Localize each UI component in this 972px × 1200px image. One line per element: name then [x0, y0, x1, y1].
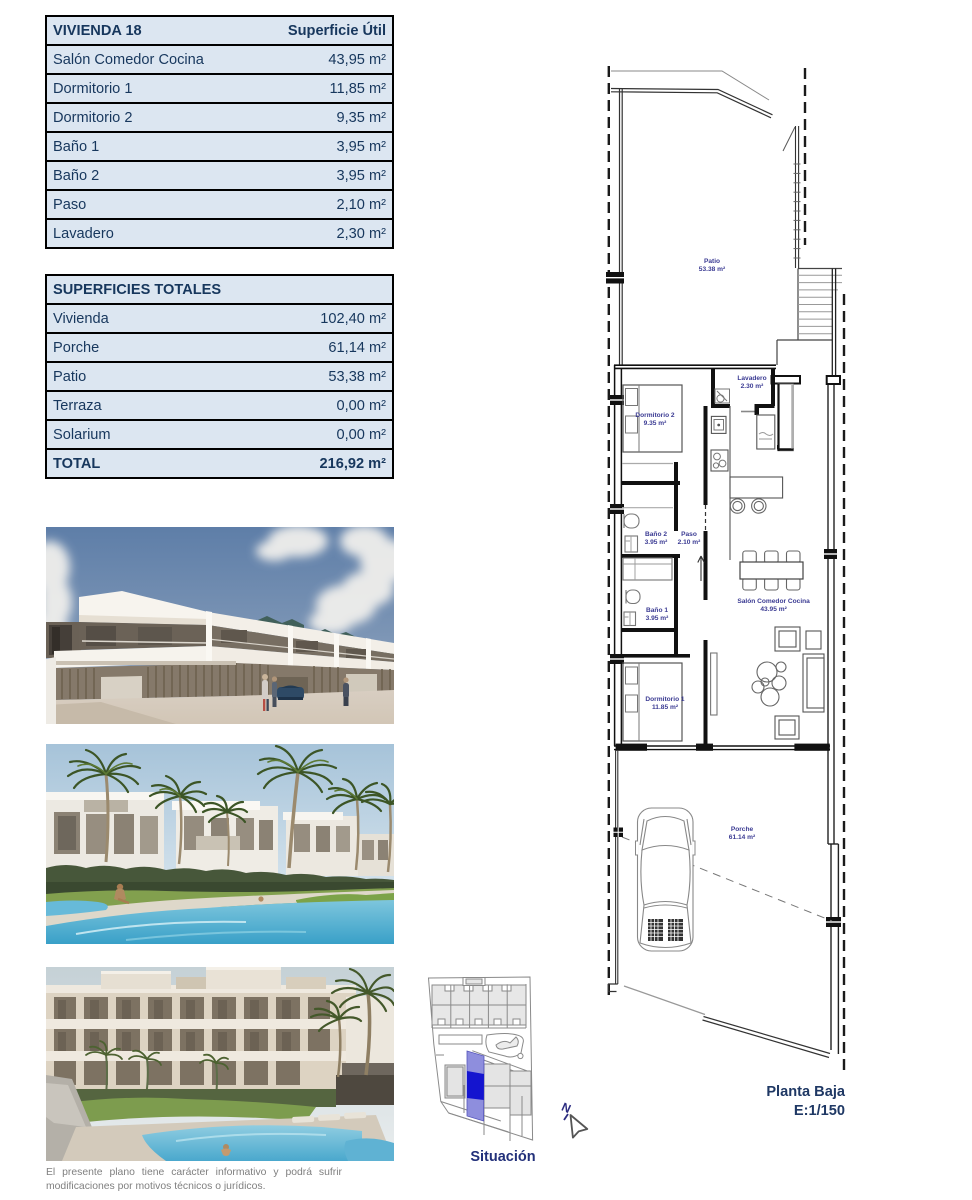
svg-text:61.14 m²: 61.14 m²: [729, 834, 756, 841]
svg-text:53.38 m²: 53.38 m²: [699, 266, 726, 273]
svg-text:11.85 m²: 11.85 m²: [652, 704, 679, 711]
svg-text:2.10 m²: 2.10 m²: [678, 539, 702, 546]
svg-text:Salón Comedor Cocina: Salón Comedor Cocina: [737, 598, 810, 605]
svg-text:Baño 1: Baño 1: [646, 607, 668, 614]
svg-text:2.30 m²: 2.30 m²: [741, 383, 765, 390]
svg-text:Dormitorio 1: Dormitorio 1: [645, 696, 685, 703]
svg-text:3.95 m²: 3.95 m²: [645, 539, 669, 546]
svg-text:43.95 m²: 43.95 m²: [760, 606, 787, 613]
svg-text:Patio: Patio: [704, 258, 720, 265]
svg-text:Baño 2: Baño 2: [645, 531, 667, 538]
svg-text:3.95 m²: 3.95 m²: [646, 615, 670, 622]
svg-text:Lavadero: Lavadero: [737, 375, 766, 382]
svg-text:N: N: [559, 1100, 573, 1116]
svg-text:Porche: Porche: [731, 826, 754, 833]
svg-text:Dormitorio 2: Dormitorio 2: [635, 412, 675, 419]
svg-text:Paso: Paso: [681, 531, 697, 538]
svg-text:9.35 m²: 9.35 m²: [644, 420, 668, 427]
